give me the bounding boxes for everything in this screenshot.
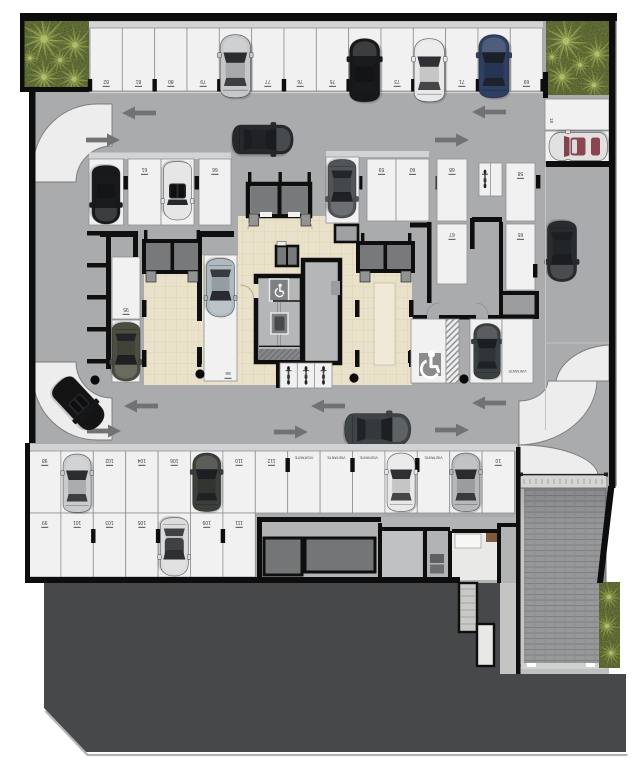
svg-text:66: 66 — [212, 166, 218, 172]
svg-text:101: 101 — [73, 519, 82, 525]
svg-text:VISITANTE: VISITANTE — [508, 369, 527, 373]
svg-text:68: 68 — [449, 166, 455, 172]
svg-text:99: 99 — [42, 519, 48, 525]
svg-text:103: 103 — [105, 519, 114, 525]
svg-text:58: 58 — [518, 170, 524, 176]
svg-text:95: 95 — [123, 306, 129, 312]
svg-text:71: 71 — [459, 78, 465, 84]
svg-text:104: 104 — [138, 457, 147, 463]
svg-text:82: 82 — [103, 78, 109, 84]
svg-text:106: 106 — [170, 457, 179, 463]
svg-text:VISITANTE: VISITANTE — [294, 456, 313, 460]
svg-text:111: 111 — [235, 519, 243, 525]
svg-text:65: 65 — [518, 231, 524, 237]
svg-text:56: 56 — [225, 371, 231, 376]
svg-text:112: 112 — [267, 457, 275, 463]
svg-text:105: 105 — [138, 519, 147, 525]
svg-text:98: 98 — [42, 457, 48, 463]
svg-text:77: 77 — [265, 78, 271, 84]
svg-text:79: 79 — [200, 78, 206, 84]
svg-text:67: 67 — [449, 231, 455, 237]
svg-text:VISITANTE: VISITANTE — [327, 456, 346, 460]
svg-text:VISITANTE: VISITANTE — [424, 456, 443, 460]
svg-text:75: 75 — [329, 78, 335, 84]
svg-text:10: 10 — [495, 457, 501, 463]
svg-text:80: 80 — [168, 78, 174, 84]
svg-text:102: 102 — [105, 457, 114, 463]
svg-text:81: 81 — [135, 78, 141, 84]
svg-text:73: 73 — [394, 78, 400, 84]
svg-text:69: 69 — [523, 78, 529, 84]
svg-text:109: 109 — [202, 519, 211, 525]
svg-text:110: 110 — [235, 457, 243, 463]
svg-text:61: 61 — [142, 166, 148, 172]
svg-text:60: 60 — [410, 166, 416, 172]
svg-text:76: 76 — [297, 78, 303, 84]
svg-text:18: 18 — [549, 118, 554, 124]
svg-text:59: 59 — [379, 166, 385, 172]
svg-text:VISITANTE: VISITANTE — [359, 456, 378, 460]
